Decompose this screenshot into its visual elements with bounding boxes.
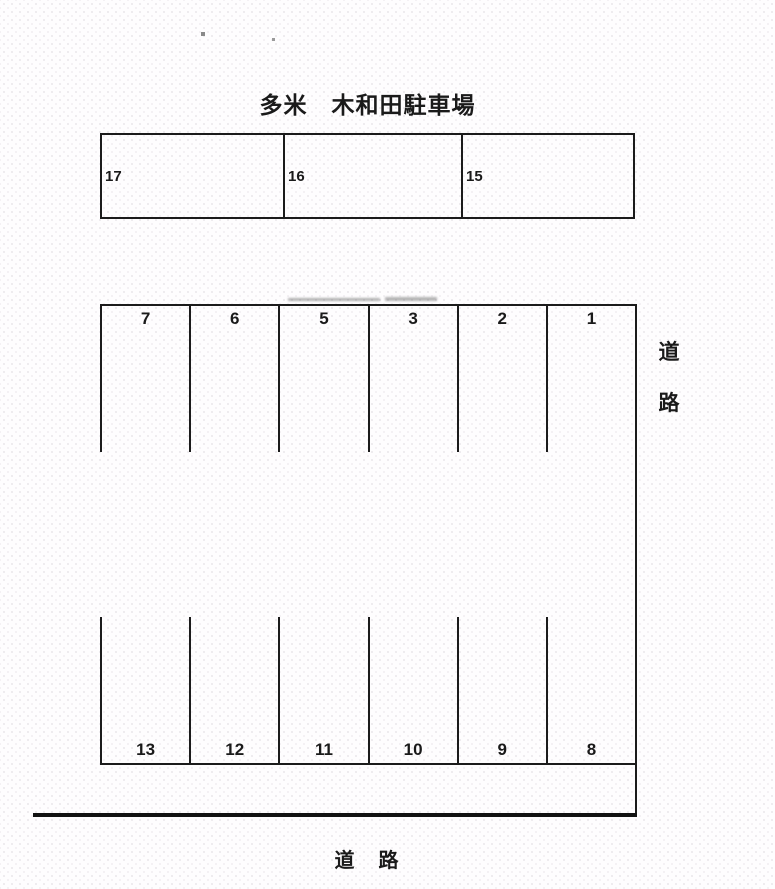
stall-number: 5 — [319, 309, 328, 329]
parking-stall-11: 11 — [278, 617, 367, 763]
parking-stall-13: 13 — [100, 617, 189, 763]
road-edge-line — [33, 813, 637, 817]
parking-map-page: 多米 木和田駐車場 17 16 15 7 6 5 3 2 1 — [0, 0, 775, 889]
stall-number: 11 — [315, 740, 333, 760]
road-label-right: 道 路 — [656, 342, 682, 415]
stall-number: 17 — [105, 168, 122, 185]
parking-stall-8: 8 — [546, 617, 635, 763]
stall-number: 3 — [408, 309, 417, 329]
parking-stall-17: 17 — [102, 135, 283, 217]
stall-number: 9 — [498, 740, 507, 760]
stall-number: 7 — [141, 309, 150, 329]
parking-stall-10: 10 — [368, 617, 457, 763]
parking-stall-7: 7 — [100, 306, 189, 452]
stall-number: 2 — [498, 309, 507, 329]
page-title: 多米 木和田駐車場 — [100, 86, 635, 120]
scan-artifact-speck — [201, 32, 205, 36]
parking-stall-2: 2 — [457, 306, 546, 452]
stall-number: 8 — [587, 740, 596, 760]
road-label-bottom: 道 路 — [100, 844, 635, 873]
upper-parking-block: 17 16 15 — [100, 133, 635, 219]
top-stall-row: 7 6 5 3 2 1 — [100, 304, 635, 452]
parking-stall-6: 6 — [189, 306, 278, 452]
stall-number: 15 — [466, 168, 483, 185]
parking-stall-3: 3 — [368, 306, 457, 452]
parking-stall-12: 12 — [189, 617, 278, 763]
road-label-char: 道 — [656, 342, 682, 364]
parking-stall-16: 16 — [283, 135, 461, 217]
stall-number: 16 — [288, 168, 305, 185]
bottom-stall-row: 13 12 11 10 9 8 — [100, 617, 635, 765]
stall-number: 6 — [230, 309, 239, 329]
parking-stall-5: 5 — [278, 306, 367, 452]
parking-stall-15: 15 — [461, 135, 633, 217]
lot-right-border — [635, 304, 637, 817]
scan-artifact-smudge — [288, 298, 380, 301]
stall-number: 13 — [136, 740, 155, 760]
stall-number: 1 — [587, 309, 596, 329]
road-label-char: 路 — [656, 393, 682, 415]
parking-stall-1: 1 — [546, 306, 635, 452]
stall-number: 10 — [404, 740, 423, 760]
parking-stall-9: 9 — [457, 617, 546, 763]
stall-number: 12 — [225, 740, 244, 760]
scan-artifact-smudge — [385, 297, 437, 301]
scan-artifact-speck — [272, 38, 275, 41]
